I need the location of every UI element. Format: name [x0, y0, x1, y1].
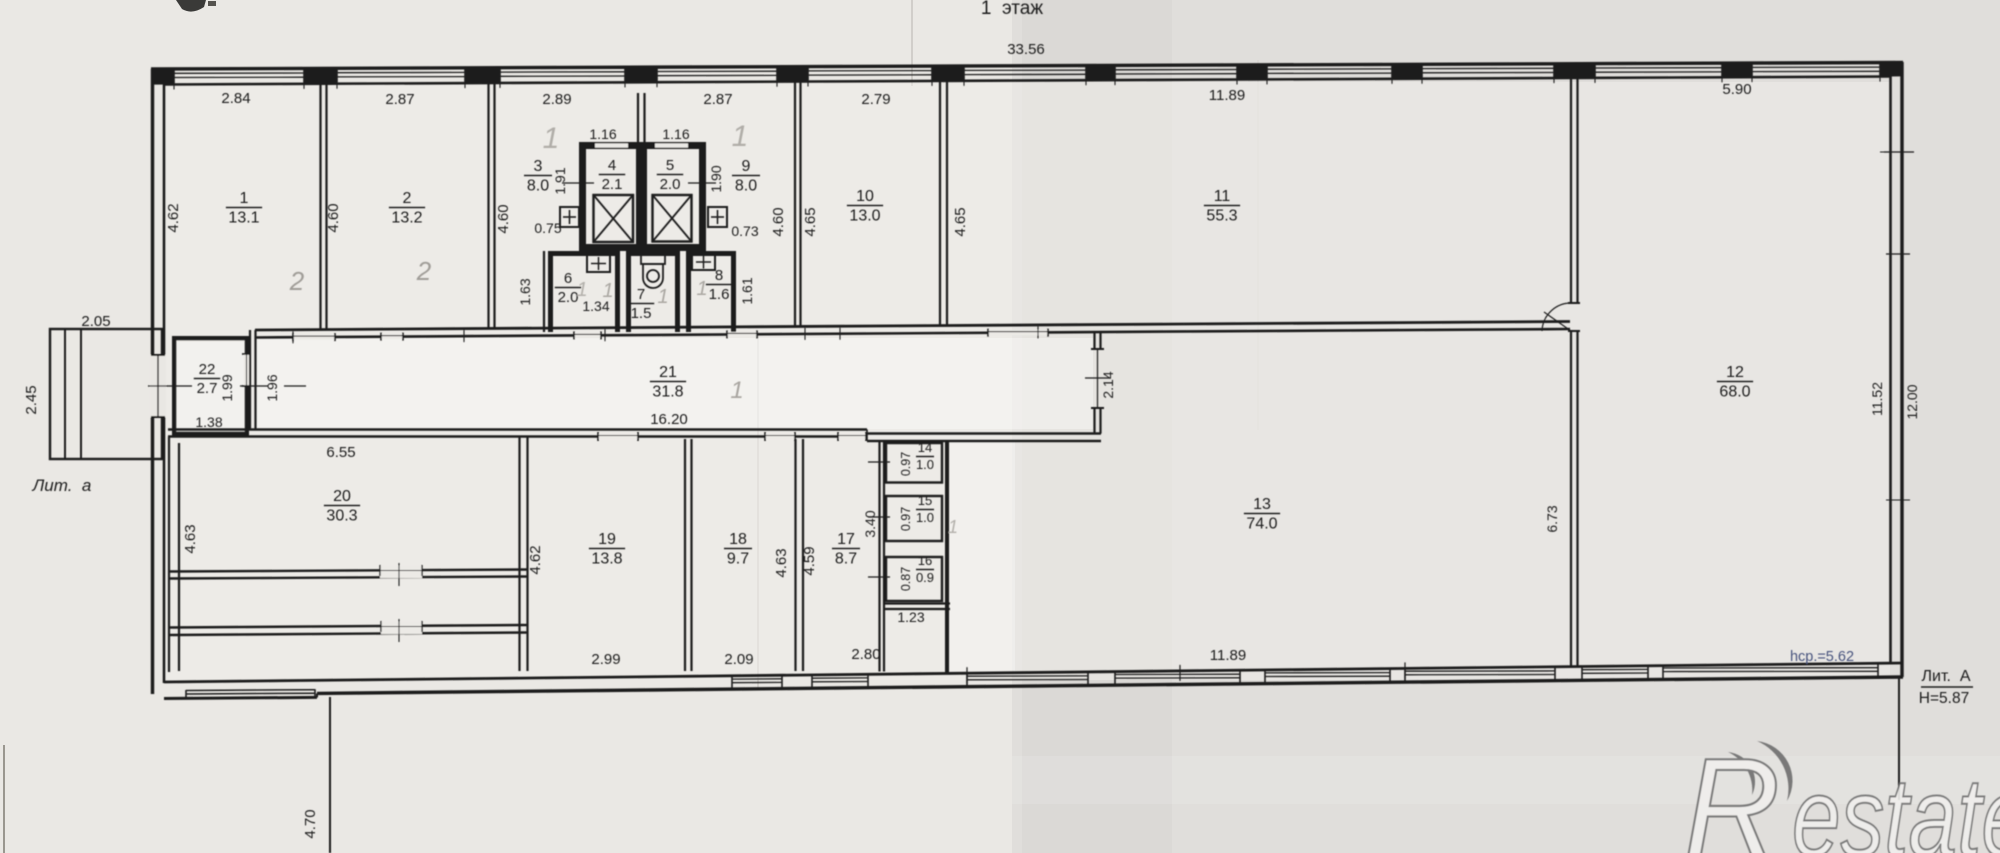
svg-text:11: 11	[1214, 188, 1231, 205]
svg-text:2: 2	[289, 266, 305, 296]
svg-text:4.60: 4.60	[495, 204, 512, 233]
svg-text:31.8: 31.8	[652, 384, 683, 401]
svg-text:8.0: 8.0	[527, 178, 549, 195]
svg-text:6.55: 6.55	[326, 444, 355, 461]
svg-text:1.6: 1.6	[709, 286, 730, 303]
svg-text:Лит. а: Лит. а	[32, 476, 92, 495]
svg-text:1: 1	[948, 517, 958, 537]
svg-text:estate: estate	[1792, 755, 2000, 853]
svg-text:1: 1	[240, 190, 249, 207]
svg-text:13.1: 13.1	[228, 210, 259, 227]
svg-text:0.75: 0.75	[534, 220, 561, 236]
svg-text:12: 12	[1726, 364, 1744, 381]
svg-text:0.97: 0.97	[899, 507, 913, 531]
svg-text:1.63: 1.63	[517, 278, 533, 305]
svg-text:6.73: 6.73	[1544, 505, 1560, 532]
svg-text:4.65: 4.65	[952, 207, 969, 236]
svg-text:14: 14	[918, 440, 932, 455]
svg-text:4.63: 4.63	[182, 524, 199, 553]
svg-text:11.89: 11.89	[1209, 87, 1245, 104]
svg-text:1.16: 1.16	[589, 126, 616, 142]
svg-text:3.40: 3.40	[862, 510, 878, 537]
svg-text:9: 9	[742, 158, 751, 175]
svg-text:8.0: 8.0	[735, 178, 757, 195]
svg-text:11.89: 11.89	[1210, 647, 1246, 664]
svg-text:2.0: 2.0	[660, 176, 681, 193]
svg-text:2.0: 2.0	[558, 289, 579, 306]
svg-text:21: 21	[659, 364, 677, 381]
svg-text:30.3: 30.3	[326, 508, 357, 525]
svg-text:22: 22	[199, 361, 216, 378]
svg-text:5.90: 5.90	[1722, 81, 1751, 98]
svg-text:1.90: 1.90	[708, 165, 724, 192]
svg-text:1: 1	[576, 279, 587, 301]
svg-text:0.73: 0.73	[731, 223, 758, 239]
svg-text:19: 19	[598, 531, 616, 548]
svg-text:hср.=5.62: hср.=5.62	[1790, 649, 1854, 665]
svg-text:15: 15	[918, 493, 932, 508]
svg-text:2.89: 2.89	[542, 91, 571, 108]
svg-text:2.7: 2.7	[197, 380, 218, 397]
svg-text:1: 1	[602, 280, 613, 302]
svg-text:74.0: 74.0	[1246, 516, 1277, 533]
svg-text:4.60: 4.60	[770, 207, 787, 236]
svg-text:1: 1	[657, 286, 668, 308]
svg-text:1: 1	[732, 120, 749, 153]
svg-text:18: 18	[729, 531, 747, 548]
svg-text:2.05: 2.05	[81, 313, 110, 330]
svg-text:4.60: 4.60	[325, 203, 342, 232]
svg-text:2.84: 2.84	[221, 90, 250, 107]
svg-text:Н=5.87: Н=5.87	[1919, 690, 1969, 707]
svg-text:55.3: 55.3	[1206, 208, 1237, 225]
svg-text:0.97: 0.97	[899, 452, 913, 476]
svg-text:2.45: 2.45	[23, 385, 40, 414]
svg-text:1.5: 1.5	[631, 305, 652, 322]
svg-text:1: 1	[696, 278, 707, 300]
svg-text:2: 2	[416, 256, 432, 286]
svg-text:4.65: 4.65	[802, 207, 819, 236]
svg-text:16.20: 16.20	[650, 411, 688, 428]
svg-text:12.00: 12.00	[1904, 384, 1920, 419]
svg-text:2.14: 2.14	[1100, 371, 1116, 398]
svg-text:4.59: 4.59	[801, 546, 818, 575]
svg-text:1.38: 1.38	[195, 414, 222, 430]
svg-text:1 этаж: 1 этаж	[981, 0, 1043, 19]
svg-text:5: 5	[666, 157, 674, 174]
svg-text:33.56: 33.56	[1007, 41, 1045, 58]
svg-text:1.99: 1.99	[219, 374, 235, 401]
svg-text:2.87: 2.87	[385, 91, 414, 108]
svg-text:1.0: 1.0	[916, 510, 934, 525]
svg-text:1.61: 1.61	[739, 277, 755, 304]
svg-text:0.87: 0.87	[899, 567, 913, 591]
svg-text:4.63: 4.63	[773, 548, 790, 577]
svg-text:0.9: 0.9	[916, 570, 934, 585]
svg-text:2.09: 2.09	[724, 651, 753, 668]
svg-text:2.80: 2.80	[851, 646, 880, 663]
svg-text:1.91: 1.91	[552, 167, 568, 194]
svg-text:1: 1	[730, 377, 743, 404]
svg-text:2: 2	[403, 190, 412, 207]
svg-text:1.0: 1.0	[916, 457, 934, 472]
svg-text:R: R	[1684, 729, 1780, 853]
svg-text:13.2: 13.2	[391, 210, 422, 227]
svg-text:9.7: 9.7	[727, 551, 749, 568]
svg-text:2.87: 2.87	[703, 91, 732, 108]
svg-text:3: 3	[534, 158, 543, 175]
svg-text:13.8: 13.8	[591, 551, 622, 568]
svg-text:1.16: 1.16	[662, 126, 689, 142]
svg-text:2.79: 2.79	[861, 91, 890, 108]
svg-text:17: 17	[837, 531, 855, 548]
svg-text:Лит. А: Лит. А	[1922, 668, 1971, 685]
svg-text:16: 16	[918, 553, 932, 568]
svg-text:4.70: 4.70	[302, 809, 319, 838]
svg-text:4.62: 4.62	[165, 203, 182, 232]
svg-text:1.96: 1.96	[264, 374, 280, 401]
svg-text:20: 20	[333, 488, 351, 505]
svg-text:8.7: 8.7	[835, 551, 857, 568]
svg-text:2.1: 2.1	[602, 176, 623, 193]
svg-text:6: 6	[564, 270, 572, 287]
svg-text:4: 4	[608, 157, 616, 174]
svg-text:11.52: 11.52	[1869, 382, 1885, 416]
svg-text:4.62: 4.62	[527, 545, 544, 574]
svg-text:10: 10	[856, 188, 874, 205]
svg-text:7: 7	[637, 286, 645, 303]
svg-text:8: 8	[715, 267, 723, 284]
svg-text:68.0: 68.0	[1719, 384, 1750, 401]
svg-text:1: 1	[543, 122, 560, 155]
svg-text:13: 13	[1253, 496, 1271, 513]
svg-text:2.99: 2.99	[591, 651, 620, 668]
svg-text:13.0: 13.0	[849, 208, 880, 225]
svg-text:1.23: 1.23	[897, 609, 924, 625]
